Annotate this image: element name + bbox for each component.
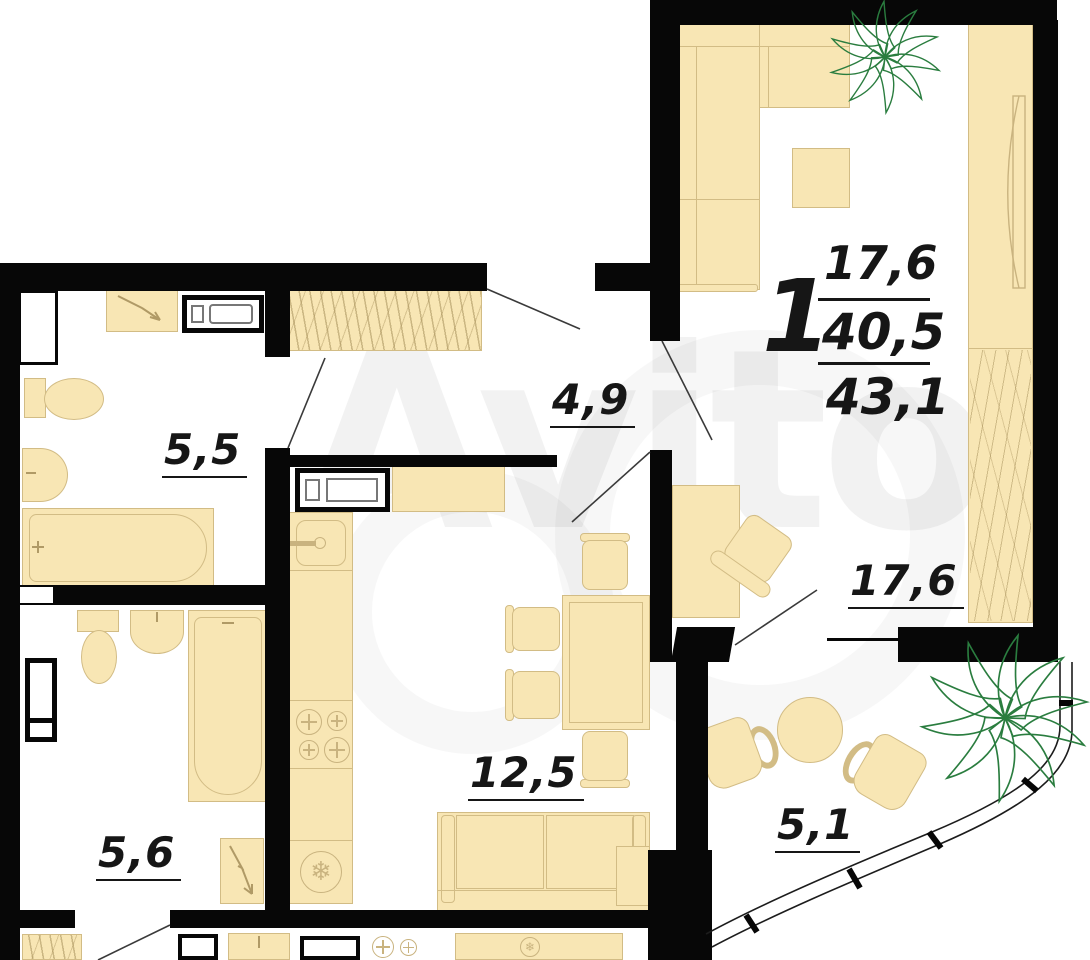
wall-top-left-block	[0, 263, 487, 291]
sofa-armrest	[674, 284, 758, 292]
nb-faucet	[258, 936, 260, 948]
wardrobe-hall	[288, 287, 482, 351]
toilet-tank-2	[77, 610, 119, 632]
duct-shaft	[18, 290, 58, 365]
wardrobe-hatch	[970, 350, 1031, 621]
wall-bottom-a	[0, 910, 75, 928]
toilet-bowl-2	[81, 630, 117, 684]
washer-column-outline	[25, 658, 57, 742]
wall-bottom-b	[170, 910, 648, 928]
kitchen-counter-top	[392, 465, 505, 512]
dining-chair-1	[512, 607, 560, 651]
neighbor-door-swing	[98, 925, 170, 960]
washing-machine-outline	[182, 295, 264, 333]
dining-chair-3	[582, 540, 628, 590]
nb-box-1	[178, 934, 218, 960]
summary-line-1	[818, 298, 930, 301]
mullion-2	[1023, 779, 1037, 791]
label-balcony: 5,1	[775, 800, 860, 853]
wall-bath1-right-upper	[265, 291, 290, 357]
wall-living-right	[1033, 20, 1058, 662]
wall-kitchen-top	[288, 455, 557, 467]
dining-table-inner	[569, 602, 643, 723]
sofa-cushion-divider-2	[673, 199, 759, 200]
washer-detail-drum	[209, 304, 253, 324]
counter-divider-1	[288, 570, 353, 571]
wall-kitchen-left	[265, 605, 290, 928]
washer-detail-small	[191, 305, 204, 323]
mullion-5	[746, 915, 757, 932]
burner-3	[299, 740, 319, 760]
mullion-4	[849, 869, 860, 888]
bathtub-1-inner	[29, 514, 207, 582]
burner-1	[296, 709, 322, 735]
label-hallway: 4,9	[550, 375, 635, 428]
summary-line-2	[818, 362, 930, 365]
sink-1	[22, 448, 68, 502]
bathtub-2-inner	[194, 617, 262, 795]
wall-living-left-upper	[650, 0, 680, 341]
kitchen-faucet	[290, 541, 316, 546]
sofa-cushion-divider	[768, 46, 769, 108]
nb-box-2	[300, 936, 360, 960]
counter-divider-4	[288, 840, 353, 841]
counter-divider-2	[288, 700, 353, 701]
wall-balcony-top	[898, 627, 1058, 662]
faucet-tub-1b	[37, 541, 39, 553]
summary-living-area: 17,6	[824, 236, 938, 290]
mullion-3	[929, 832, 941, 848]
appliance-detail-b	[326, 478, 378, 502]
wardrobe-divider	[968, 348, 1033, 349]
faucet-sink-1	[26, 472, 36, 474]
wall-balcony-corner	[648, 850, 712, 960]
wall-living-top	[650, 0, 1057, 25]
appliance-under-counter	[295, 468, 390, 512]
wall-living-left-lower	[650, 450, 672, 662]
nb-burner-1	[372, 936, 394, 958]
counter-divider-3	[288, 768, 353, 769]
label-living-room: 17,6	[848, 556, 964, 609]
window-sill	[827, 638, 898, 641]
fridge-snowflake-icon: ❄	[300, 851, 342, 893]
nb-snowflake-icon: ❄	[520, 937, 540, 957]
sofa-back-line	[672, 46, 850, 47]
side-table	[616, 846, 650, 906]
sofa-side-line	[696, 46, 697, 290]
label-kitchen: 12,5	[468, 748, 584, 801]
kitchen-faucet-knob	[314, 537, 326, 549]
wall-left-exterior	[0, 263, 20, 960]
ottoman	[792, 148, 850, 208]
nb-burner-2	[400, 939, 417, 956]
dining-chair-2	[512, 671, 560, 719]
nb-wardrobe	[22, 934, 82, 960]
faucet-sink-2	[156, 612, 158, 622]
wall-gap	[20, 587, 53, 603]
washer-column-divider	[30, 718, 52, 723]
dining-chair-4	[582, 731, 628, 781]
summary-area-no-balcony: 40,5	[822, 303, 945, 361]
toilet-tank-1	[24, 378, 46, 418]
toilet-bowl-1	[44, 378, 104, 420]
water-heater	[106, 288, 178, 332]
burner-2	[327, 711, 347, 731]
appliance-detail-a	[305, 479, 320, 501]
floor-plan: Avito	[0, 0, 1090, 960]
sofa-corner-left-arm	[672, 24, 760, 290]
washer-beige-2	[220, 838, 264, 904]
label-bathroom-top: 5,5	[162, 425, 247, 478]
burner-4	[324, 737, 350, 763]
faucet-tub-2	[222, 622, 234, 624]
kitchen-sofa-cushion-1	[456, 815, 544, 889]
label-bathroom-bottom: 5,6	[96, 828, 181, 881]
wall-bath1-right-lower	[265, 448, 290, 605]
summary-total-area: 43,1	[826, 368, 949, 426]
wall-balcony-jamb	[671, 627, 735, 662]
